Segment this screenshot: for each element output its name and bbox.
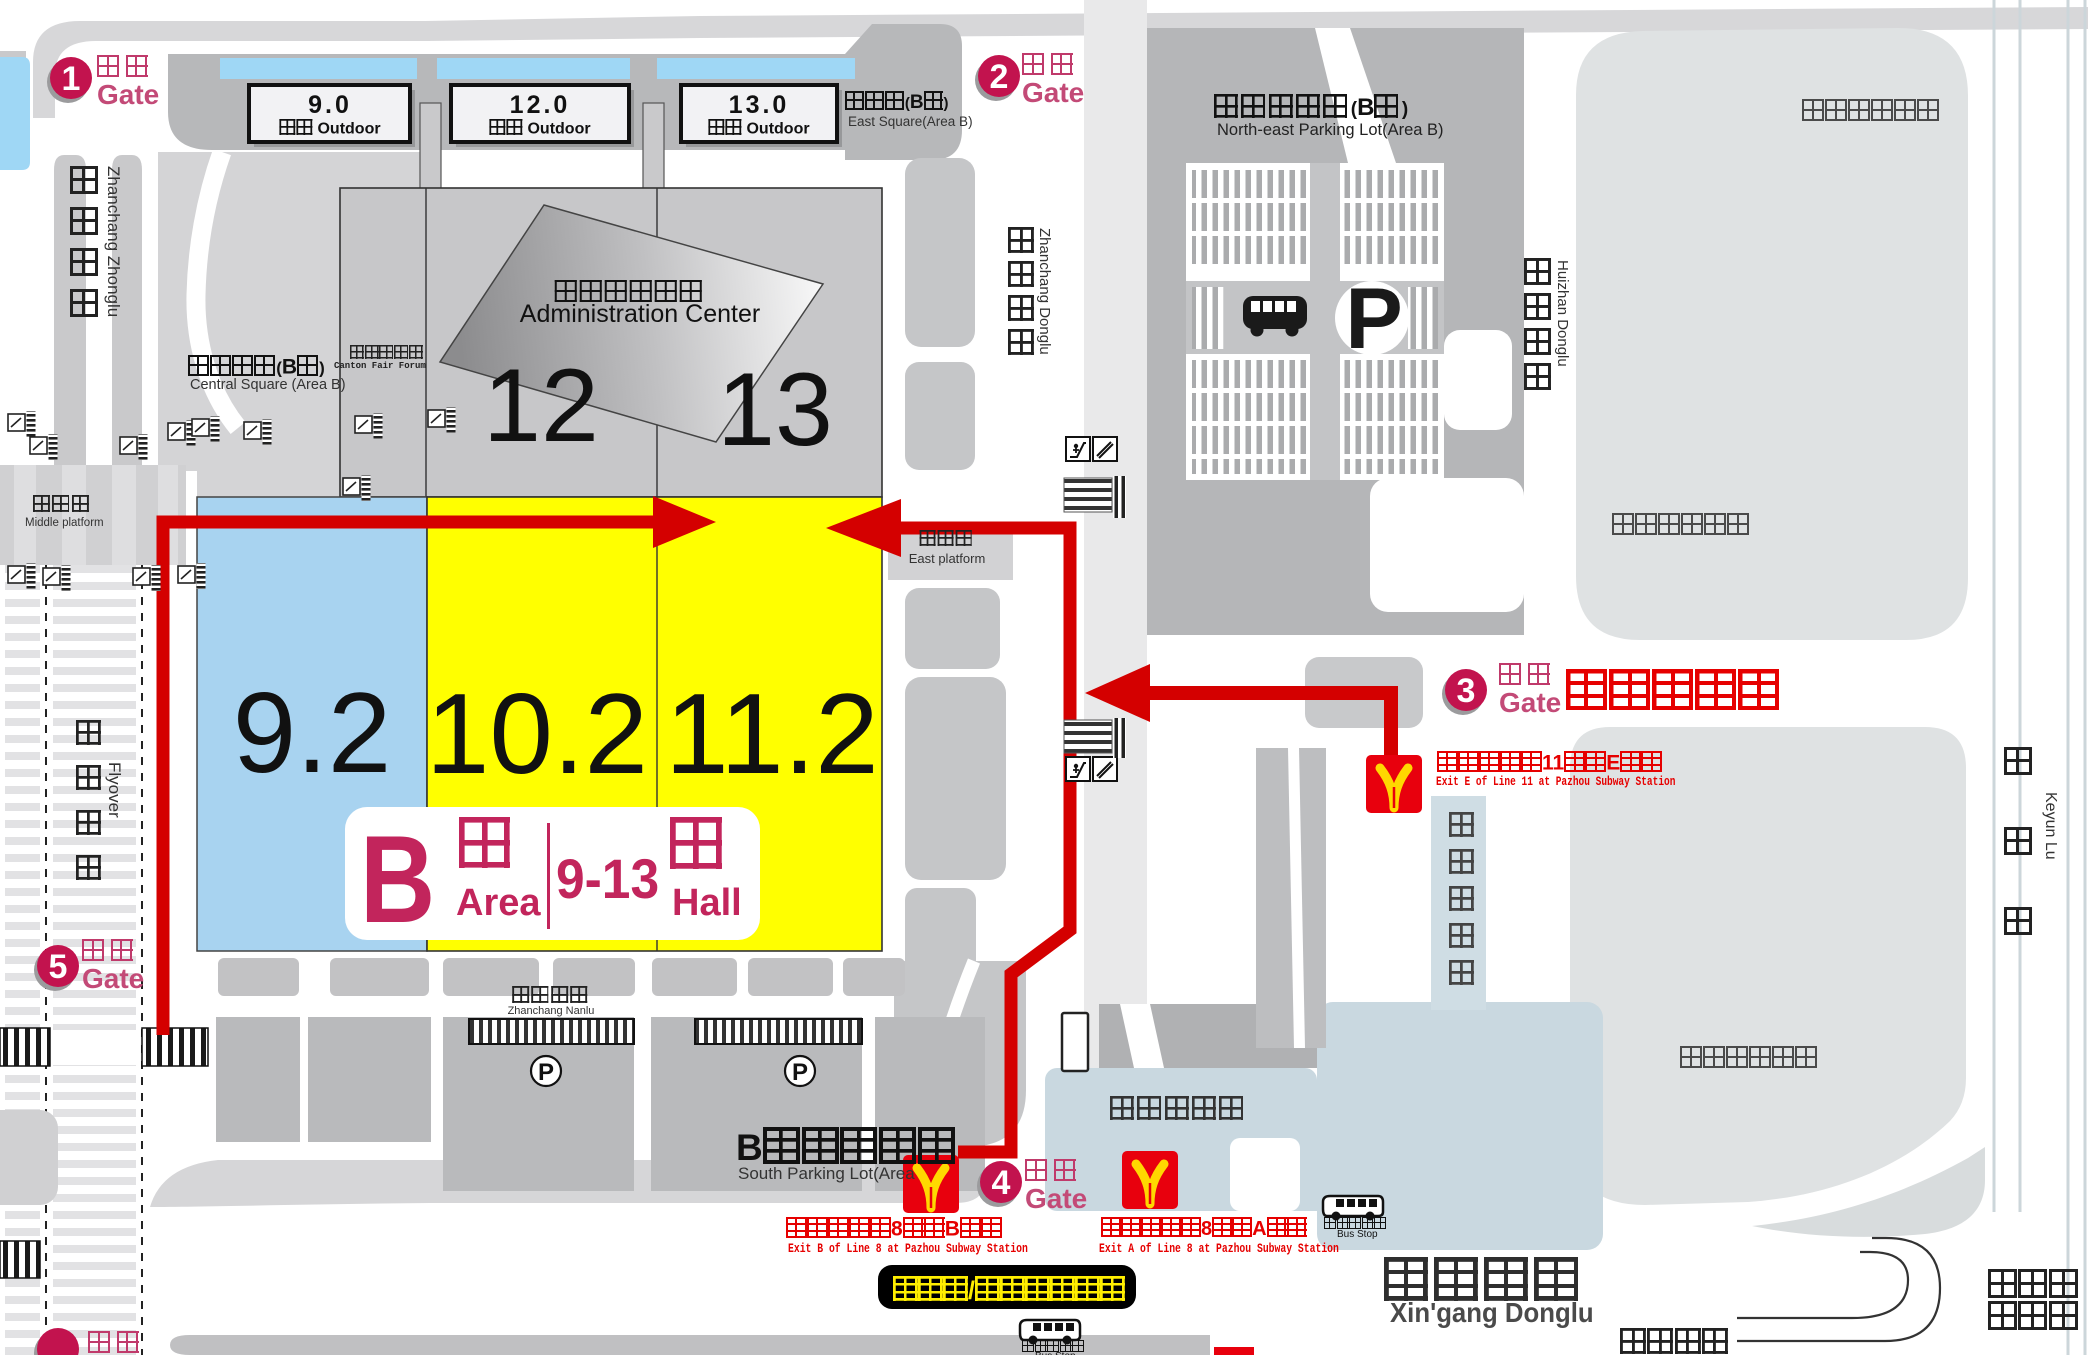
svg-text:P: P bbox=[792, 1059, 808, 1086]
svg-text:5: 5 bbox=[49, 948, 68, 986]
svg-text:2: 2 bbox=[990, 58, 1009, 96]
svg-text:1: 1 bbox=[62, 60, 81, 98]
svg-text:4: 4 bbox=[992, 1164, 1011, 1202]
svg-text:P: P bbox=[1345, 271, 1402, 367]
svg-text:P: P bbox=[538, 1059, 554, 1086]
svg-text:3: 3 bbox=[1457, 672, 1476, 710]
